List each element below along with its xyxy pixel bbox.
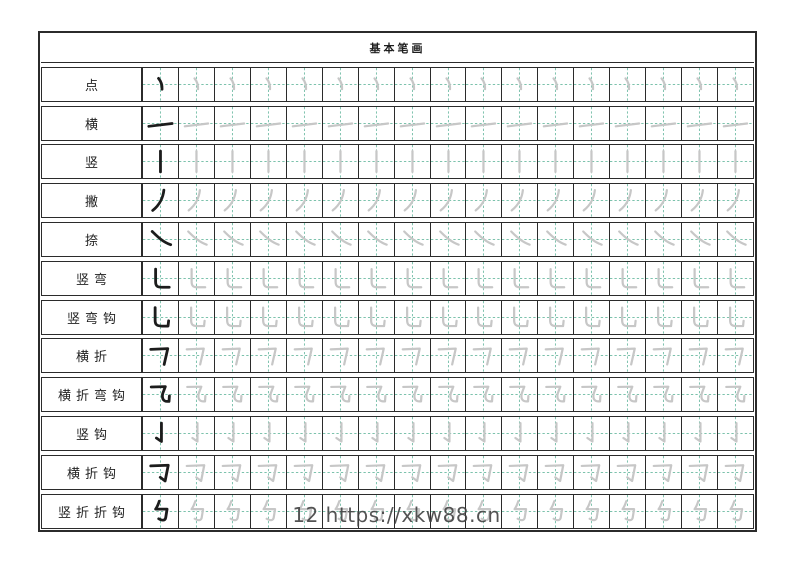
- practice-cell: [250, 145, 286, 178]
- stroke-row-label: 竖钩: [42, 417, 142, 450]
- practice-grid-icon: [395, 378, 430, 411]
- practice-cell: [537, 145, 573, 178]
- stroke-row-label: 横: [42, 107, 142, 140]
- practice-cell: [214, 262, 250, 295]
- practice-cell: [286, 107, 322, 140]
- practice-grid-icon: [359, 339, 394, 372]
- practice-cell: [465, 339, 501, 372]
- practice-grid-icon: [359, 456, 394, 489]
- practice-grid-icon: [323, 145, 358, 178]
- practice-cell: [681, 262, 717, 295]
- stroke-na-icon: [152, 231, 170, 244]
- practice-grid-icon: [287, 145, 322, 178]
- practice-grid-icon: [215, 223, 250, 256]
- practice-cell: [717, 107, 753, 140]
- practice-cell: [430, 68, 466, 101]
- practice-grid-icon: [574, 223, 609, 256]
- practice-grid-icon: [143, 339, 178, 372]
- practice-grid-icon: [143, 301, 178, 334]
- example-cell: [142, 68, 178, 101]
- practice-grid-icon: [395, 223, 430, 256]
- stroke-shu-gou-icon: [516, 423, 521, 441]
- practice-cell: [214, 339, 250, 372]
- example-cell: [142, 262, 178, 295]
- practice-cell: [609, 417, 645, 450]
- practice-cell: [501, 68, 537, 101]
- stroke-heng-zhe-icon: [474, 349, 491, 365]
- practice-grid-icon: [502, 301, 537, 334]
- practice-grid-icon: [538, 262, 573, 295]
- practice-cell: [501, 301, 537, 334]
- practice-grid-icon: [251, 223, 286, 256]
- stroke-na-icon: [619, 231, 637, 244]
- practice-cell: [609, 184, 645, 217]
- practice-grid-icon: [538, 68, 573, 101]
- practice-cell: [250, 262, 286, 295]
- practice-cell: [501, 378, 537, 411]
- practice-grid-icon: [323, 417, 358, 450]
- practice-grid-icon: [718, 456, 753, 489]
- stroke-shu-wan-gou-icon: [263, 307, 276, 325]
- stroke-shu-gou-icon: [480, 423, 485, 441]
- stroke-row-label: 竖: [42, 145, 142, 178]
- practice-grid-icon: [610, 456, 645, 489]
- practice-cell: [645, 417, 681, 450]
- practice-cell: [465, 223, 501, 256]
- practice-cell: [358, 262, 394, 295]
- practice-grid-icon: [323, 68, 358, 101]
- practice-grid-icon: [466, 417, 501, 450]
- practice-cell: [537, 378, 573, 411]
- practice-cell: [681, 107, 717, 140]
- stroke-heng-zhe-gou-icon: [295, 465, 312, 481]
- practice-grid-icon: [466, 262, 501, 295]
- practice-grid-icon: [251, 417, 286, 450]
- practice-cell: [609, 145, 645, 178]
- practice-cell: [501, 145, 537, 178]
- practice-grid-icon: [502, 339, 537, 372]
- practice-grid-icon: [179, 107, 214, 140]
- practice-cell: [537, 456, 573, 489]
- practice-cell: [573, 223, 609, 256]
- practice-grid-icon: [718, 378, 753, 411]
- practice-cell: [465, 456, 501, 489]
- practice-grid-icon: [215, 339, 250, 372]
- practice-cell: [537, 339, 573, 372]
- practice-cell: [250, 339, 286, 372]
- practice-cell: [501, 262, 537, 295]
- stroke-heng-zhe-icon: [726, 349, 743, 365]
- stroke-heng-zhe-gou-icon: [366, 465, 383, 481]
- example-cell: [142, 378, 178, 411]
- example-cell: [142, 107, 178, 140]
- example-cell: [142, 184, 178, 217]
- stroke-row: 竖钩: [41, 416, 754, 451]
- practice-cell: [286, 378, 322, 411]
- practice-cell: [645, 145, 681, 178]
- practice-cell: [358, 417, 394, 450]
- practice-grid-icon: [323, 378, 358, 411]
- practice-grid-icon: [466, 339, 501, 372]
- stroke-shu-wan-gou-icon: [299, 307, 312, 325]
- practice-grid-icon: [538, 184, 573, 217]
- stroke-na-icon: [548, 231, 566, 244]
- stroke-shu-wan-gou-icon: [407, 307, 420, 325]
- stroke-heng-zhe-gou-icon: [474, 465, 491, 481]
- practice-cell: [250, 107, 286, 140]
- stroke-row: 横折弯钩: [41, 377, 754, 412]
- practice-grid-icon: [682, 262, 717, 295]
- practice-grid-icon: [251, 456, 286, 489]
- practice-grid-icon: [682, 456, 717, 489]
- practice-cell: [537, 184, 573, 217]
- practice-cell: [501, 417, 537, 450]
- stroke-heng-zhe-gou-icon: [151, 465, 168, 481]
- practice-grid-icon: [610, 223, 645, 256]
- stroke-na-icon: [440, 231, 458, 244]
- practice-cell: [501, 184, 537, 217]
- stroke-heng-zhe-icon: [295, 349, 312, 365]
- stroke-na-icon: [512, 231, 530, 244]
- practice-grid-icon: [251, 107, 286, 140]
- practice-cell: [681, 417, 717, 450]
- practice-cell: [465, 378, 501, 411]
- practice-cell: [322, 262, 358, 295]
- practice-grid-icon: [466, 223, 501, 256]
- practice-grid-icon: [323, 184, 358, 217]
- practice-grid-icon: [574, 184, 609, 217]
- practice-grid-icon: [574, 456, 609, 489]
- practice-grid-icon: [502, 107, 537, 140]
- stroke-row-label: 横折弯钩: [42, 378, 142, 411]
- practice-cell: [322, 301, 358, 334]
- practice-cell: [214, 301, 250, 334]
- practice-grid-icon: [718, 145, 753, 178]
- practice-grid-icon: [431, 68, 466, 101]
- practice-grid-icon: [718, 223, 753, 256]
- practice-grid-icon: [251, 145, 286, 178]
- practice-cell: [394, 262, 430, 295]
- practice-cell: [214, 417, 250, 450]
- practice-cell: [358, 456, 394, 489]
- practice-grid-icon: [502, 68, 537, 101]
- practice-grid-icon: [287, 378, 322, 411]
- stroke-na-icon: [727, 231, 745, 244]
- stroke-heng-zhe-gou-icon: [259, 465, 276, 481]
- stroke-shu-gou-icon: [156, 423, 161, 441]
- practice-sheet: 基本笔画 点横竖撇捺竖弯竖弯钩横折横折弯钩竖钩横折钩竖折折钩: [38, 31, 757, 532]
- stroke-shu-wan-gou-icon: [550, 307, 563, 325]
- practice-cell: [573, 378, 609, 411]
- example-cell: [142, 456, 178, 489]
- practice-cell: [286, 145, 322, 178]
- stroke-row-label: 点: [42, 68, 142, 101]
- practice-cell: [178, 301, 214, 334]
- practice-cell: [250, 417, 286, 450]
- stroke-heng-zhe-icon: [438, 349, 455, 365]
- stroke-shu-gou-icon: [408, 423, 413, 441]
- practice-cell: [717, 145, 753, 178]
- practice-cell: [178, 262, 214, 295]
- practice-grid-icon: [574, 68, 609, 101]
- stroke-na-icon: [404, 231, 422, 244]
- practice-cell: [178, 378, 214, 411]
- practice-cell: [537, 301, 573, 334]
- practice-cell: [394, 223, 430, 256]
- practice-grid-icon: [287, 456, 322, 489]
- practice-grid-icon: [610, 184, 645, 217]
- practice-grid-icon: [646, 262, 681, 295]
- practice-cell: [573, 339, 609, 372]
- practice-grid-icon: [359, 145, 394, 178]
- stroke-heng-zhe-gou-icon: [618, 465, 635, 481]
- practice-grid-icon: [215, 417, 250, 450]
- stroke-shu-wan-gou-icon: [515, 307, 528, 325]
- practice-cell: [178, 417, 214, 450]
- stroke-heng-zhe-icon: [330, 349, 347, 365]
- practice-cell: [178, 68, 214, 101]
- practice-cell: [358, 107, 394, 140]
- practice-cell: [465, 301, 501, 334]
- stroke-na-icon: [296, 231, 314, 244]
- practice-grid-icon: [323, 262, 358, 295]
- practice-cell: [358, 378, 394, 411]
- footer-watermark: 12 https://xkw88.cn: [0, 503, 793, 527]
- stroke-heng-zhe-icon: [690, 349, 707, 365]
- practice-grid-icon: [143, 456, 178, 489]
- stroke-heng-zhe-icon: [582, 349, 599, 365]
- practice-cell: [358, 145, 394, 178]
- practice-grid-icon: [718, 262, 753, 295]
- practice-cell: [609, 107, 645, 140]
- practice-grid-icon: [466, 378, 501, 411]
- practice-cell: [573, 262, 609, 295]
- stroke-shu-wan-gou-icon: [586, 307, 599, 325]
- practice-cell: [717, 301, 753, 334]
- practice-grid-icon: [718, 417, 753, 450]
- practice-cell: [609, 339, 645, 372]
- practice-grid-icon: [179, 339, 214, 372]
- practice-grid-icon: [287, 107, 322, 140]
- stroke-row: 竖: [41, 144, 754, 179]
- practice-grid-icon: [359, 378, 394, 411]
- practice-cell: [573, 301, 609, 334]
- practice-cell: [681, 223, 717, 256]
- practice-grid-icon: [538, 456, 573, 489]
- practice-cell: [430, 378, 466, 411]
- stroke-shu-wan-gou-icon: [443, 307, 456, 325]
- practice-grid-icon: [538, 223, 573, 256]
- practice-grid-icon: [682, 107, 717, 140]
- practice-cell: [681, 145, 717, 178]
- practice-grid-icon: [395, 184, 430, 217]
- practice-grid-icon: [431, 107, 466, 140]
- practice-grid-icon: [646, 68, 681, 101]
- practice-cell: [609, 456, 645, 489]
- practice-grid-icon: [179, 68, 214, 101]
- practice-cell: [609, 223, 645, 256]
- practice-grid-icon: [431, 378, 466, 411]
- practice-cell: [358, 301, 394, 334]
- practice-grid-icon: [251, 184, 286, 217]
- stroke-na-icon: [655, 231, 673, 244]
- stroke-na-icon: [188, 231, 206, 244]
- practice-cell: [178, 339, 214, 372]
- practice-cell: [537, 68, 573, 101]
- practice-cell: [681, 301, 717, 334]
- practice-cell: [322, 107, 358, 140]
- practice-grid-icon: [682, 339, 717, 372]
- stroke-shu-gou-icon: [228, 423, 233, 441]
- practice-cell: [394, 68, 430, 101]
- stroke-heng-zhe-icon: [546, 349, 563, 365]
- practice-grid-icon: [359, 262, 394, 295]
- practice-grid-icon: [574, 262, 609, 295]
- practice-cell: [286, 223, 322, 256]
- stroke-row: 横折: [41, 338, 754, 373]
- practice-grid-icon: [179, 262, 214, 295]
- practice-cell: [537, 107, 573, 140]
- practice-grid-icon: [323, 107, 358, 140]
- stroke-heng-zhe-gou-icon: [402, 465, 419, 481]
- stroke-heng-zhe-icon: [510, 349, 527, 365]
- practice-grid-icon: [431, 262, 466, 295]
- stroke-shu-wan-gou-icon: [479, 307, 492, 325]
- practice-cell: [537, 417, 573, 450]
- practice-cell: [681, 456, 717, 489]
- practice-grid-icon: [431, 417, 466, 450]
- stroke-shu-gou-icon: [731, 423, 736, 441]
- practice-grid-icon: [179, 456, 214, 489]
- practice-grid-icon: [323, 223, 358, 256]
- stroke-heng-zhe-gou-icon: [187, 465, 204, 481]
- practice-grid-icon: [215, 378, 250, 411]
- practice-grid-icon: [682, 378, 717, 411]
- practice-grid-icon: [646, 107, 681, 140]
- practice-grid-icon: [359, 68, 394, 101]
- practice-grid-icon: [431, 456, 466, 489]
- practice-cell: [394, 378, 430, 411]
- stroke-shu-wan-gou-icon: [371, 307, 384, 325]
- practice-cell: [358, 184, 394, 217]
- practice-grid-icon: [646, 223, 681, 256]
- practice-grid-icon: [574, 301, 609, 334]
- stroke-row-label: 捺: [42, 223, 142, 256]
- practice-cell: [178, 223, 214, 256]
- practice-grid-icon: [179, 378, 214, 411]
- practice-cell: [286, 339, 322, 372]
- practice-grid-icon: [287, 301, 322, 334]
- stroke-shu-wan-gou-icon: [658, 307, 671, 325]
- practice-grid-icon: [538, 107, 573, 140]
- practice-cell: [214, 107, 250, 140]
- practice-grid-icon: [431, 223, 466, 256]
- stroke-heng-zhe-icon: [187, 349, 204, 365]
- practice-grid-icon: [574, 417, 609, 450]
- practice-cell: [430, 107, 466, 140]
- practice-grid-icon: [610, 378, 645, 411]
- practice-grid-icon: [574, 107, 609, 140]
- practice-grid-icon: [538, 301, 573, 334]
- practice-cell: [537, 223, 573, 256]
- practice-grid-icon: [395, 339, 430, 372]
- stroke-row: 竖弯钩: [41, 300, 754, 335]
- practice-grid-icon: [215, 184, 250, 217]
- practice-cell: [430, 223, 466, 256]
- practice-cell: [717, 184, 753, 217]
- stroke-heng-zhe-icon: [151, 349, 168, 365]
- practice-cell: [322, 378, 358, 411]
- practice-cell: [286, 68, 322, 101]
- practice-cell: [214, 456, 250, 489]
- practice-cell: [214, 184, 250, 217]
- stroke-row-label: 撇: [42, 184, 142, 217]
- practice-cell: [430, 339, 466, 372]
- stroke-heng-zhe-icon: [402, 349, 419, 365]
- practice-cell: [430, 301, 466, 334]
- practice-cell: [537, 262, 573, 295]
- practice-grid-icon: [323, 339, 358, 372]
- example-cell: [142, 145, 178, 178]
- practice-grid-icon: [502, 262, 537, 295]
- practice-cell: [358, 339, 394, 372]
- stroke-row: 竖弯: [41, 261, 754, 296]
- stroke-heng-zhe-gou-icon: [546, 465, 563, 481]
- stroke-heng-zhe-gou-icon: [726, 465, 743, 481]
- practice-grid-icon: [179, 223, 214, 256]
- stroke-shu-wan-gou-icon: [191, 307, 204, 325]
- practice-cell: [430, 145, 466, 178]
- stroke-na-icon: [260, 231, 278, 244]
- practice-cell: [286, 301, 322, 334]
- practice-cell: [609, 262, 645, 295]
- practice-grid-icon: [466, 301, 501, 334]
- practice-cell: [717, 223, 753, 256]
- practice-cell: [286, 184, 322, 217]
- practice-grid-icon: [502, 223, 537, 256]
- example-cell: [142, 339, 178, 372]
- practice-cell: [322, 456, 358, 489]
- practice-grid-icon: [574, 145, 609, 178]
- practice-grid-icon: [395, 301, 430, 334]
- practice-grid-icon: [466, 68, 501, 101]
- stroke-heng-zhe-gou-icon: [438, 465, 455, 481]
- stroke-shu-gou-icon: [444, 423, 449, 441]
- stroke-row-label: 横折: [42, 339, 142, 372]
- practice-grid-icon: [395, 68, 430, 101]
- stroke-shu-gou-icon: [552, 423, 557, 441]
- practice-grid-icon: [431, 339, 466, 372]
- practice-cell: [286, 262, 322, 295]
- practice-grid-icon: [718, 107, 753, 140]
- stroke-heng-zhe-gou-icon: [330, 465, 347, 481]
- practice-grid-icon: [287, 262, 322, 295]
- stroke-row-label: 竖弯钩: [42, 301, 142, 334]
- practice-cell: [430, 262, 466, 295]
- stroke-shu-gou-icon: [264, 423, 269, 441]
- stroke-shu-gou-icon: [695, 423, 700, 441]
- practice-grid-icon: [359, 223, 394, 256]
- practice-cell: [609, 378, 645, 411]
- practice-grid-icon: [179, 145, 214, 178]
- practice-grid-icon: [646, 339, 681, 372]
- practice-cell: [645, 456, 681, 489]
- practice-cell: [645, 68, 681, 101]
- stroke-na-icon: [224, 231, 242, 244]
- practice-grid-icon: [143, 417, 178, 450]
- practice-grid-icon: [395, 145, 430, 178]
- practice-cell: [394, 301, 430, 334]
